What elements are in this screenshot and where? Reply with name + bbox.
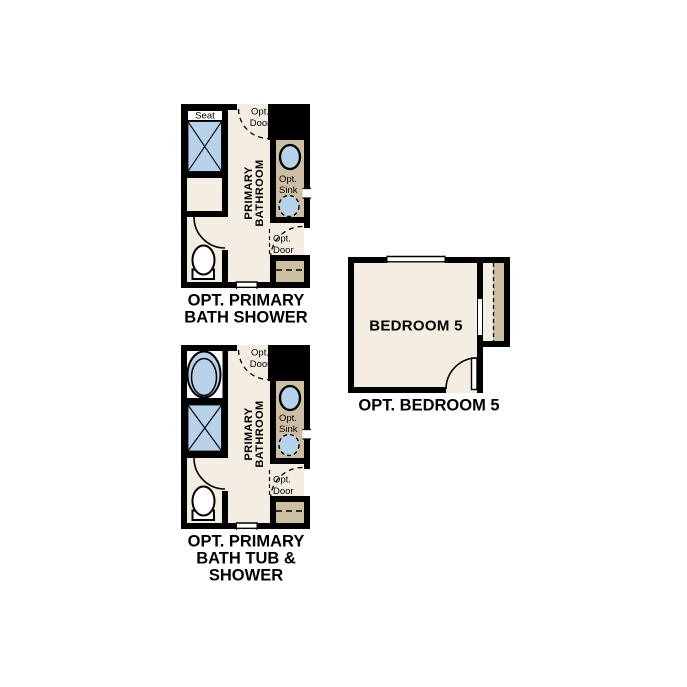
room-label: PRIMARY BATHROOM [243,159,266,226]
wall-niche [303,189,312,199]
sink-icon [280,386,300,410]
svg-text:Opt.: Opt. [273,234,291,245]
opt-sink-label: Opt. Sink [279,174,298,196]
svg-text:Sink: Sink [279,424,298,435]
bath-tub-shower-floorplan: Opt. Sink Opt. Door Opt. Door [175,339,315,605]
opt-sink-icon [279,196,299,217]
svg-text:Door: Door [250,359,271,370]
svg-text:Opt.: Opt. [279,174,297,185]
closet-opening [477,299,484,335]
shower-icon [188,405,223,452]
tub-icon [187,351,223,398]
opt-sink-icon [279,435,299,456]
opt-sink-label: Opt. Sink [279,413,298,435]
svg-text:Door: Door [273,245,294,256]
toilet-icon [193,487,215,521]
svg-text:BATH TUB &: BATH TUB & [196,550,296,568]
wall-niche [303,430,312,440]
shower-icon [188,121,223,172]
svg-text:BATHROOM: BATHROOM [254,400,266,467]
svg-text:BATHROOM: BATHROOM [254,159,266,226]
closet [483,263,504,341]
plan-caption: OPT. PRIMARY BATH SHOWER [184,292,308,327]
linen-cabinet [276,261,304,282]
svg-text:Opt.: Opt. [273,475,291,486]
svg-text:OPT. PRIMARY: OPT. PRIMARY [188,533,305,551]
window-icon [237,281,258,289]
svg-text:Opt.: Opt. [279,413,297,424]
plan-caption: OPT. BEDROOM 5 [358,397,499,415]
window-icon [237,522,258,530]
svg-text:BATH SHOWER: BATH SHOWER [184,309,308,327]
bedroom5-floorplan: BEDROOM 5 OPT. BEDROOM 5 [345,252,520,420]
svg-text:Sink: Sink [279,185,298,196]
svg-text:Door: Door [250,118,271,129]
floorplan-options-sheet: Seat Opt. Sink Opt. Door Op [0,0,687,687]
seat-label: Seat [195,111,215,122]
sink-icon [280,145,300,169]
linen-cabinet [276,502,304,523]
bath-shower-floorplan: Seat Opt. Sink Opt. Door Op [175,98,315,333]
svg-text:Door: Door [273,486,294,497]
toilet-icon [193,246,215,280]
plan-caption: OPT. PRIMARY BATH TUB & SHOWER [188,533,305,585]
svg-text:Opt.: Opt. [251,107,269,118]
room-label: BEDROOM 5 [369,318,463,335]
svg-text:SHOWER: SHOWER [209,567,283,585]
shower-seat: Seat [188,111,223,122]
room-label: PRIMARY BATHROOM [243,400,266,467]
window-icon [387,256,445,264]
svg-text:OPT. PRIMARY: OPT. PRIMARY [188,292,305,310]
svg-text:Opt.: Opt. [251,348,269,359]
